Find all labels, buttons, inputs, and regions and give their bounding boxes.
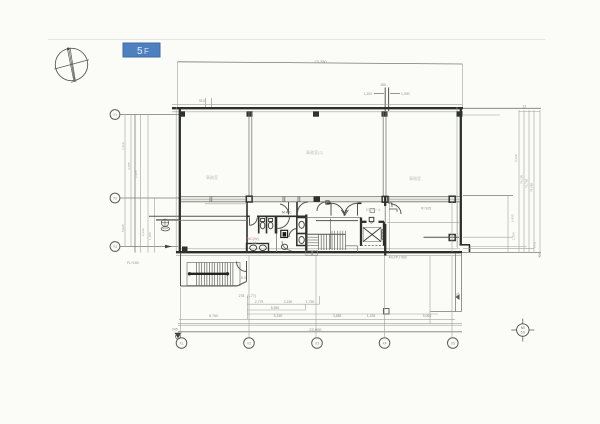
svg-text:(4.5): (4.5): [533, 242, 537, 248]
svg-text:74,085: 74,085: [530, 182, 534, 192]
svg-text:1,100: 1,100: [364, 92, 373, 96]
svg-text:3,485: 3,485: [333, 314, 342, 318]
svg-text:F: F: [144, 47, 149, 56]
svg-text:事務室(2): 事務室(2): [306, 149, 324, 155]
svg-text:Y2: Y2: [113, 197, 117, 201]
svg-text:74,185: 74,185: [520, 174, 524, 184]
svg-text:FL: FL: [456, 292, 460, 296]
svg-text:1,305: 1,305: [134, 170, 138, 178]
svg-text:5,020: 5,020: [121, 224, 125, 232]
svg-text:Y3: Y3: [113, 245, 117, 249]
svg-text:1,000: 1,000: [401, 92, 410, 96]
svg-text:FL+150: FL+150: [127, 261, 139, 265]
svg-text:2,430: 2,430: [141, 228, 145, 236]
svg-text:3.5: 3.5: [252, 241, 257, 245]
svg-text:3,105: 3,105: [127, 162, 131, 170]
svg-text:910: 910: [199, 99, 205, 103]
svg-text:400: 400: [538, 253, 542, 258]
svg-text:2,150: 2,150: [284, 300, 293, 304]
svg-text:150: 150: [380, 83, 386, 87]
svg-text:X3: X3: [315, 342, 319, 346]
svg-text:1,250: 1,250: [512, 232, 516, 240]
svg-text:Y1: Y1: [113, 113, 117, 117]
svg-text:事務室: 事務室: [206, 174, 218, 180]
svg-text:278: 278: [239, 294, 245, 298]
svg-text:X5: X5: [451, 342, 455, 346]
svg-text:5,150: 5,150: [274, 314, 283, 318]
svg-text:1,180: 1,180: [148, 232, 152, 240]
svg-text:EVホール: EVホール: [366, 207, 381, 212]
svg-text:2,775: 2,775: [255, 300, 264, 304]
svg-text:X1: X1: [179, 342, 183, 346]
svg-text:事務室: 事務室: [409, 175, 421, 181]
svg-text:5.0: 5.0: [241, 276, 246, 280]
svg-text:245: 245: [172, 328, 178, 332]
svg-text:7,210: 7,210: [121, 142, 125, 150]
svg-text:1,790: 1,790: [306, 300, 315, 304]
svg-text:6,430: 6,430: [514, 154, 518, 162]
svg-text:5,550: 5,550: [271, 306, 280, 310]
svg-text:8,750: 8,750: [209, 314, 218, 318]
svg-text:12: 12: [523, 105, 527, 109]
svg-text:5: 5: [137, 46, 143, 57]
svg-text:N0: N0: [521, 326, 525, 330]
svg-text:73,750: 73,750: [525, 178, 529, 188]
svg-text:M WC: M WC: [282, 211, 292, 215]
svg-text:1,435: 1,435: [367, 314, 376, 318]
svg-text:(1.77): (1.77): [247, 294, 256, 298]
svg-text:▼EXP.J 500: ▼EXP.J 500: [388, 256, 407, 260]
svg-text:2,430: 2,430: [511, 214, 515, 222]
svg-text:R=105: R=105: [421, 207, 431, 211]
svg-text:5.5: 5.5: [521, 331, 526, 335]
svg-text:X4: X4: [382, 342, 386, 346]
svg-text:X2: X2: [247, 342, 251, 346]
